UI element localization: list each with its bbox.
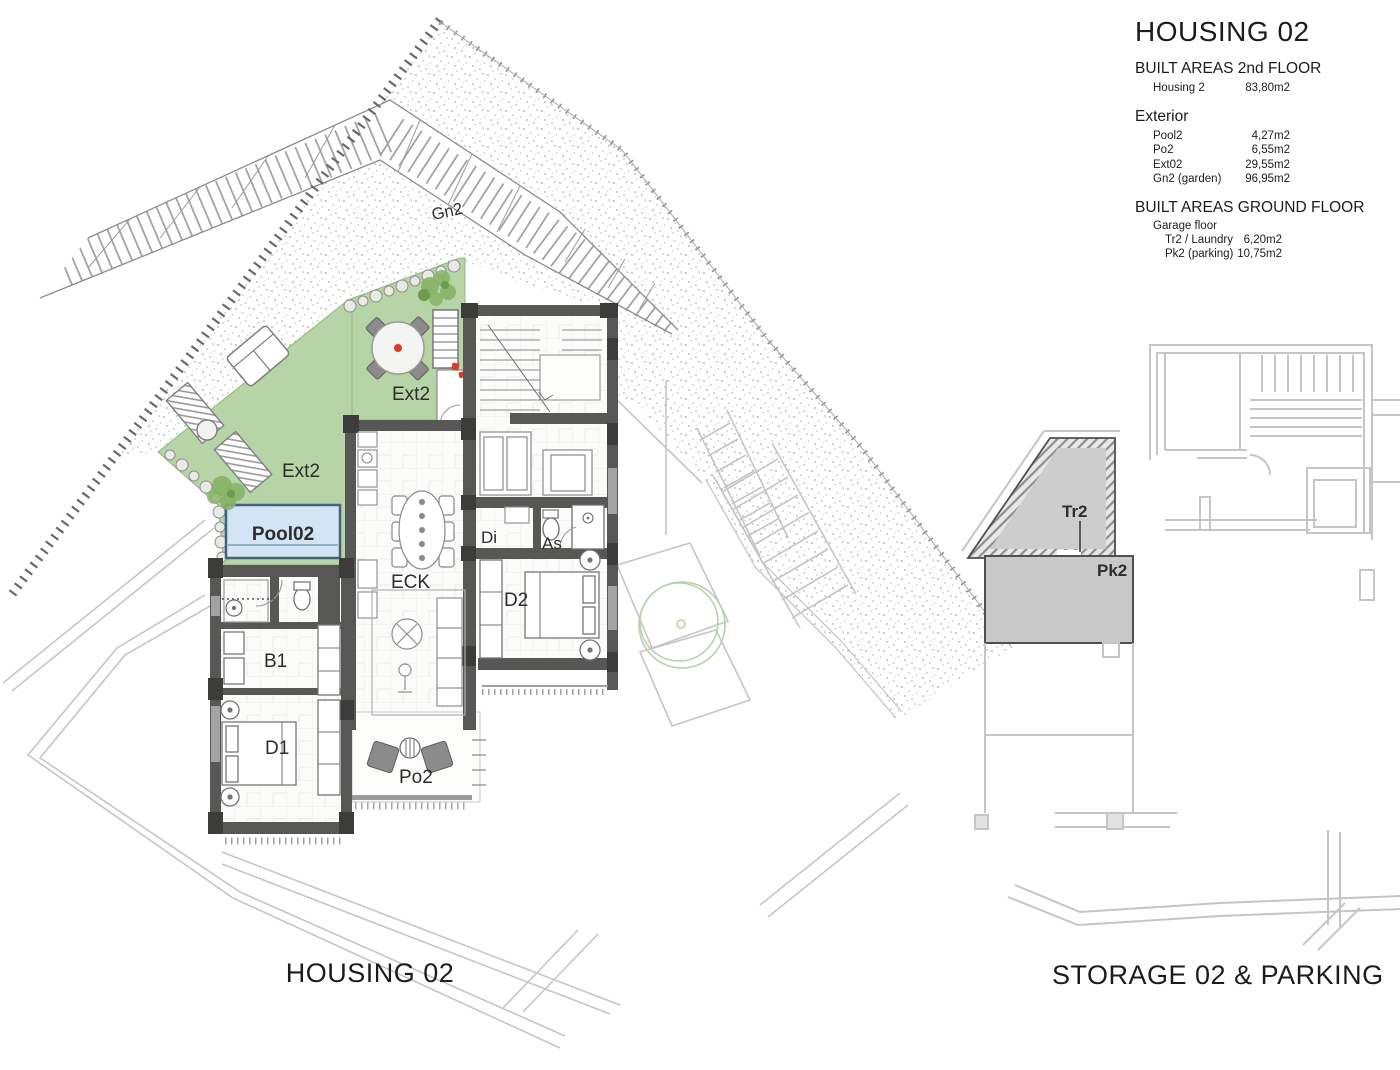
legend-row: Tr2 / Laundry 6,20m2 xyxy=(1165,233,1282,248)
legend-row: Housing 2 83,80m2 xyxy=(1153,81,1290,96)
legend-subheading-garage: Garage floor xyxy=(1153,220,1385,232)
blueprint-canvas: Gn2 Ext2 Ext2 Pool02 ECK Di As D2 B1 D1 … xyxy=(0,0,1400,1070)
legend-heading-exterior: Exterior xyxy=(1135,108,1385,126)
label-pk2: Pk2 xyxy=(1097,561,1127,580)
dining-table-symbol xyxy=(392,491,454,569)
label-pool02: Pool02 xyxy=(252,524,314,545)
caption-storage: STORAGE 02 & PARKING xyxy=(1052,960,1384,990)
label-ext2-lower: Ext2 xyxy=(282,461,320,482)
storage-plan xyxy=(962,345,1400,950)
parking-bays xyxy=(975,643,1400,950)
legend-row: Gn2 (garden) 96,95m2 xyxy=(1153,172,1290,187)
side-table-symbol xyxy=(197,420,217,440)
label-d2: D2 xyxy=(504,590,528,611)
label-as: As xyxy=(542,534,562,553)
legend-row: Pool2 4,27m2 xyxy=(1153,129,1290,144)
caption-housing: HOUSING 02 xyxy=(286,958,455,988)
label-b1: B1 xyxy=(264,651,287,672)
label-d1: D1 xyxy=(265,738,289,759)
label-po2: Po2 xyxy=(399,767,433,788)
label-tr2: Tr2 xyxy=(1062,502,1088,521)
legend-panel: HOUSING 02 BUILT AREAS 2nd FLOOR Housing… xyxy=(1135,16,1385,262)
tr2-room xyxy=(968,438,1115,559)
legend-heading-2nd-floor: BUILT AREAS 2nd FLOOR xyxy=(1135,60,1385,78)
legend-title: HOUSING 02 xyxy=(1135,16,1385,48)
legend-heading-ground-floor: BUILT AREAS GROUND FLOOR xyxy=(1135,199,1385,217)
label-di: Di xyxy=(481,528,497,547)
tree-circle xyxy=(639,582,725,668)
legend-row: Pk2 (parking) 10,75m2 xyxy=(1165,247,1282,262)
legend-row: Po2 6,55m2 xyxy=(1153,143,1290,158)
label-ext2-upper: Ext2 xyxy=(392,384,430,405)
legend-row: Ext02 29,55m2 xyxy=(1153,158,1290,173)
label-eck: ECK xyxy=(391,572,430,593)
